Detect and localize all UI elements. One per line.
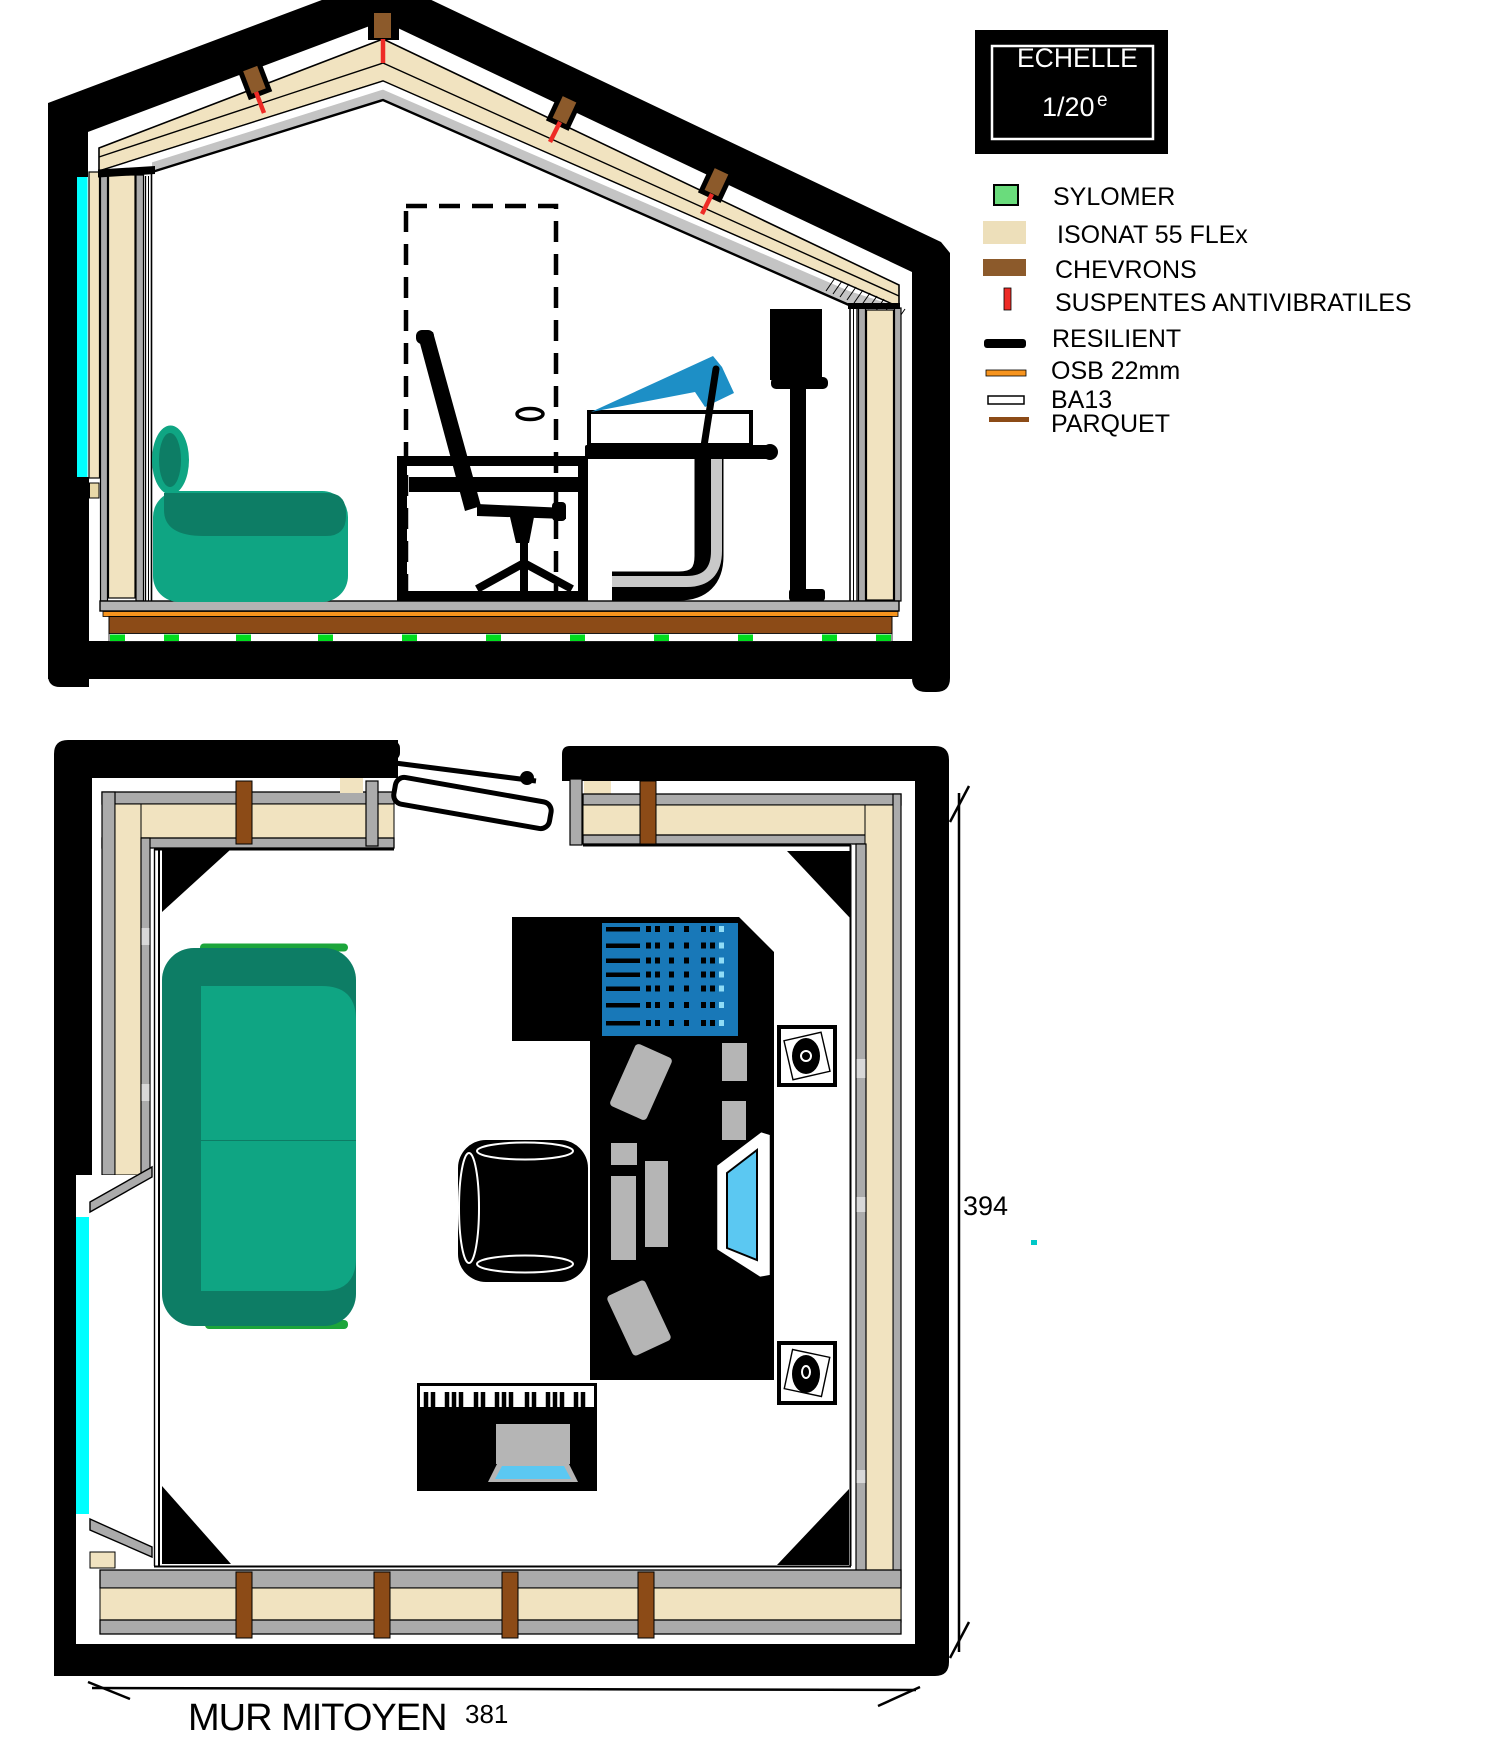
svg-text:PARQUET: PARQUET	[1051, 410, 1170, 438]
svg-text:ISONAT 55 FLEx: ISONAT 55 FLEx	[1057, 221, 1248, 249]
svg-text:1/20: 1/20	[1042, 92, 1095, 122]
svg-text:SYLOMER: SYLOMER	[1053, 183, 1175, 211]
svg-text:e: e	[1097, 90, 1108, 111]
svg-text:OSB 22mm: OSB 22mm	[1051, 357, 1180, 385]
svg-text:CHEVRONS: CHEVRONS	[1055, 256, 1197, 284]
svg-text:RESILIENT: RESILIENT	[1052, 325, 1181, 353]
svg-text:381: 381	[465, 1699, 508, 1729]
svg-text:MUR MITOYEN: MUR MITOYEN	[188, 1697, 447, 1739]
svg-text:SUSPENTES ANTIVIBRATILES: SUSPENTES ANTIVIBRATILES	[1055, 289, 1412, 317]
svg-text:ECHELLE: ECHELLE	[1017, 43, 1138, 73]
svg-text:394: 394	[963, 1191, 1008, 1221]
